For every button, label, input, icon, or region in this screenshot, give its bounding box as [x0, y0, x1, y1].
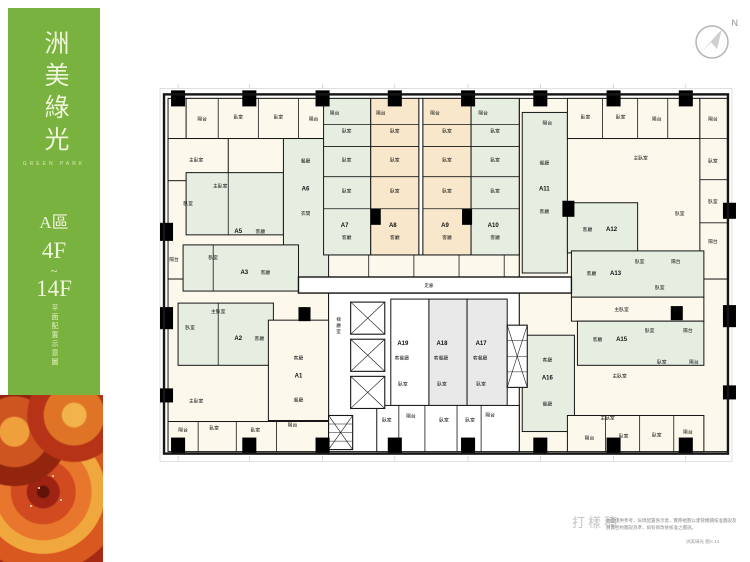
room-label: 主臥室	[633, 155, 648, 162]
room-label: 臥室	[398, 380, 408, 387]
room-label: 臥室	[439, 417, 449, 424]
room-label: 陽台	[406, 412, 416, 419]
column	[171, 90, 185, 106]
room-label: 客廳	[261, 269, 271, 276]
column	[533, 90, 547, 106]
room-label: 臥室	[490, 157, 500, 164]
room-label: 臥室	[390, 188, 400, 195]
room-label: 臥室	[208, 254, 218, 261]
room-label: 梯廳室	[336, 316, 341, 334]
room-label: 客廳	[342, 234, 352, 241]
room-label: 陽台	[288, 422, 298, 429]
project-title: 洲美綠光	[36, 30, 72, 158]
room-label: 臥室	[382, 417, 392, 424]
compass: N	[690, 16, 744, 74]
floor-from-label: 4F	[8, 238, 100, 264]
room-label: 衣間	[301, 210, 311, 217]
room-label: 臥室	[465, 417, 475, 424]
column	[723, 385, 736, 399]
room-label: 陽台	[169, 256, 179, 263]
unit-label: A3	[240, 270, 248, 276]
room-label: 臥室	[342, 128, 352, 135]
column	[242, 90, 256, 106]
room-label: 臥室	[233, 113, 243, 120]
room-label: 客廳	[442, 234, 452, 241]
column	[607, 438, 621, 454]
flower-speckle	[52, 475, 54, 477]
unit-label: A12	[606, 227, 618, 233]
room-label: 臥室	[652, 432, 662, 439]
corner-note: 洲美綠光 圖A-14	[686, 539, 719, 545]
flower-speckle	[30, 505, 32, 507]
room-label: 臥室	[657, 358, 667, 365]
room-label: 客餐廳	[434, 354, 449, 361]
room-label: 客餐廳	[395, 354, 410, 361]
column	[723, 305, 736, 327]
room-label: 臥室	[442, 157, 452, 164]
room-label: 客廳	[490, 234, 500, 241]
room-label: 臥室	[342, 188, 352, 195]
room	[467, 299, 507, 405]
room-label: 陽台	[673, 306, 683, 313]
column	[679, 90, 693, 106]
room-label: 主臥室	[612, 372, 627, 379]
unit-label: A13	[610, 271, 622, 277]
room	[186, 173, 283, 235]
disclaimer-line1: 本圖僅供參考，傢俱配置係示意，實際規劃以建管機關核准圖說及	[606, 517, 744, 524]
column	[160, 223, 173, 241]
unit-label: A11	[539, 187, 550, 193]
room-label: 臥室	[442, 188, 452, 195]
room-label: 陽台	[330, 109, 340, 116]
room-label: 主臥室	[189, 157, 204, 164]
room-label: 陽台	[689, 358, 699, 365]
room-label: 陽台	[585, 435, 595, 442]
column	[371, 209, 381, 225]
room-label: 臥室	[274, 113, 284, 120]
column	[607, 90, 621, 106]
room-label: 臥室	[616, 113, 626, 120]
column	[461, 90, 475, 106]
room-label: 客廳	[583, 226, 593, 233]
column	[388, 90, 402, 106]
column	[316, 438, 330, 454]
column	[160, 388, 173, 402]
room-label: 臥室	[619, 433, 629, 440]
room-label: 主臥室	[213, 183, 228, 190]
column	[316, 90, 330, 106]
room-label: 客廳	[540, 208, 550, 215]
unit-label: A7	[341, 223, 349, 229]
unit-label: A5	[234, 229, 242, 235]
corridor	[298, 277, 571, 293]
room-label: 臥室	[645, 327, 655, 334]
room-label: 餐廳	[301, 158, 311, 165]
unit-label: A6	[302, 187, 310, 193]
zone-label: A區	[8, 208, 100, 233]
room-label: 臥室	[342, 157, 352, 164]
column	[462, 209, 472, 225]
room	[567, 203, 637, 253]
room-label: 陽台	[478, 109, 488, 116]
room-label: 客餐廳	[473, 354, 488, 361]
unit-label: A9	[441, 223, 449, 229]
column	[388, 438, 402, 454]
room-label: 臥室	[442, 128, 452, 135]
disclaimer-text: 本圖僅供參考，傢俱配置係示意，實際規劃以建管機關核准圖說及 買賣合約圖說為準，如…	[606, 517, 744, 531]
column	[242, 438, 256, 454]
room-label: 主臥室	[211, 308, 226, 315]
room-label: 陽台	[430, 109, 440, 116]
room-label: 主臥室	[614, 306, 629, 313]
flower-speckle	[60, 499, 62, 501]
flower-speckle	[38, 487, 40, 489]
room-label: 客廳	[390, 234, 400, 241]
room-label: 臥室	[251, 427, 261, 434]
unit-label: A10	[488, 223, 500, 229]
column	[298, 307, 310, 321]
room-label: 臥室	[655, 284, 665, 291]
room-label: 臥室	[390, 128, 400, 135]
project-subtitle: GREEN PARK	[8, 161, 100, 167]
room-label: 餐廳	[543, 400, 553, 407]
room-label: 臥室	[476, 380, 486, 387]
room-label: 臥室	[185, 324, 195, 331]
room-label: 陽台	[652, 115, 662, 122]
column	[679, 438, 693, 454]
compass-north-label: N	[732, 18, 739, 28]
room-label: 走廊	[424, 282, 433, 289]
room-label: 臥室	[490, 128, 500, 135]
room	[268, 320, 328, 420]
floor-to-label: 14F	[8, 276, 100, 302]
room-label: 臥室	[390, 157, 400, 164]
room-label: 主臥室	[189, 397, 204, 404]
room-label: 陽台	[543, 119, 553, 126]
room-label: 臥室	[708, 198, 718, 205]
room-label: 主臥室	[600, 414, 615, 421]
room-label: 陽台	[708, 238, 718, 245]
room-label: 臥室	[209, 425, 219, 432]
unit-label: A17	[476, 341, 488, 347]
room-label: 陽台	[683, 429, 693, 436]
room	[419, 98, 423, 255]
page: 洲美綠光 GREEN PARK A區 4F ~ 14F 平面配置示意圖 N 陽台…	[0, 0, 750, 562]
room-label: 陽台	[683, 327, 693, 334]
unit-label: A19	[397, 341, 409, 347]
room-label: 臥室	[490, 188, 500, 195]
room-label: 餐廳	[540, 160, 550, 167]
plan-caption: 平面配置示意圖	[49, 304, 59, 367]
unit-label: A1	[295, 373, 303, 379]
room-label: 陽台	[671, 258, 681, 265]
room-label: 臥室	[708, 158, 718, 165]
column	[171, 438, 185, 454]
room-label: 客廳	[255, 335, 265, 342]
room-label: 客廳	[294, 354, 304, 361]
column	[723, 203, 736, 219]
room-label: 臥室	[635, 258, 645, 265]
room	[183, 245, 298, 291]
column	[562, 201, 574, 217]
room	[186, 98, 328, 138]
unit-label: A18	[436, 341, 448, 347]
room	[391, 299, 429, 405]
room-label: 陽台	[485, 411, 495, 418]
column	[461, 438, 475, 454]
room-label: 餐廳	[294, 396, 304, 403]
column	[533, 438, 547, 454]
room-label: 陽台	[178, 427, 188, 434]
room-label: 陽台	[309, 115, 319, 122]
disclaimer-line2: 買賣合約圖說為準，如有修改依核准之圖說。	[606, 524, 744, 531]
room	[178, 303, 273, 365]
column	[160, 307, 173, 329]
room-label: 陽台	[708, 115, 718, 122]
room	[571, 297, 703, 321]
room-label: 臥室	[581, 113, 591, 120]
room	[324, 255, 520, 277]
room-label: 客廳	[256, 228, 266, 235]
room-label: 陽台	[376, 109, 386, 116]
room-label: 客廳	[543, 356, 553, 363]
room-label: 陽台	[197, 115, 207, 122]
room	[522, 335, 574, 431]
room-label: 臥室	[675, 210, 685, 217]
room-label: 臥室	[183, 200, 193, 207]
room-label: 臥室	[437, 380, 447, 387]
unit-label: A15	[616, 337, 628, 343]
flower-photo	[0, 395, 103, 562]
room	[429, 299, 467, 405]
room-label: 客廳	[587, 270, 597, 277]
unit-label: A8	[389, 223, 397, 229]
room-label: 客廳	[593, 336, 603, 343]
unit-label: A16	[542, 375, 554, 381]
unit-label: A2	[234, 336, 242, 342]
floor-plan: 陽台臥室臥室陽台主臥室主臥室臥室A5客廳餐廳A6衣間A3客廳臥室陽台A2客廳主臥…	[158, 84, 740, 466]
